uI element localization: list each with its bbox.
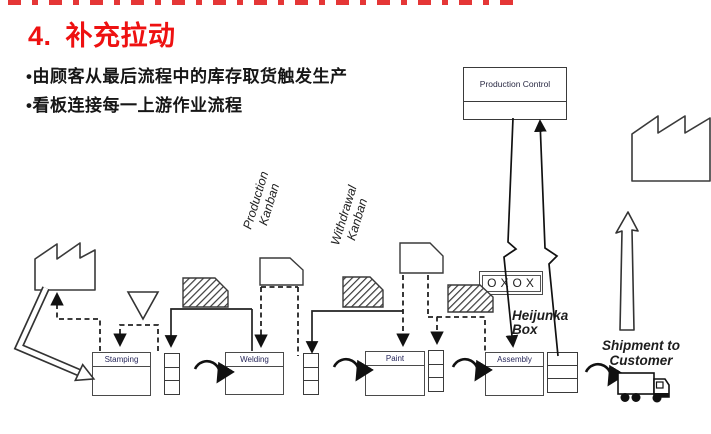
- kanban-path-into-assembly: [437, 317, 485, 351]
- bullet-item-2: •看板连接每一上游作业流程: [26, 91, 242, 116]
- kanban-path-into-stock3: [428, 317, 437, 343]
- stack-cell: [547, 378, 578, 393]
- push-arrow-supplier-to-stamping: [19, 288, 94, 380]
- heijunka-symbols: OXOX: [482, 275, 541, 292]
- production-kanban-label: Production Kanban: [237, 155, 290, 251]
- title-text: 补充拉动: [66, 21, 176, 51]
- production-control-divider: [464, 101, 566, 102]
- withdrawal-kanban-card-icon: [400, 243, 443, 273]
- heijunka-box: OXOX: [479, 271, 543, 295]
- truck-icon: [618, 373, 669, 403]
- steel-supplier-label: Steel Supplier: [37, 266, 95, 275]
- production-control-label: Production Control: [464, 79, 566, 89]
- heijunka-box-label: Heijunka Box: [512, 309, 578, 337]
- inventory-stack-after-stamping: [164, 353, 180, 395]
- slide-canvas: 4.补充拉动 •由顾客从最后流程中的库存取货触发生产 •看板连接每一上游作业流程…: [0, 0, 711, 434]
- kanban-card-hatched-icon: [183, 278, 228, 307]
- process-label-stamping: Stamping: [93, 353, 150, 367]
- process-label-assembly: Assembly: [486, 353, 543, 367]
- kanban-path-triangle-to-stamping: [120, 325, 158, 351]
- kanban-card-hatched-icon: [343, 277, 383, 307]
- title-number: 4.: [28, 21, 52, 51]
- process-box-stamping: Stamping: [92, 352, 151, 396]
- kanban-path-to-supplier: [57, 294, 100, 351]
- kanban-dashed-paths: [57, 275, 485, 356]
- process-box-assembly: Assembly: [485, 352, 544, 396]
- slide-title: 4.补充拉动: [28, 14, 176, 53]
- shipment-label: Shipment to Customer: [594, 339, 688, 369]
- cropped-red-text-fragments: [8, 0, 520, 5]
- stack-cell: [164, 380, 180, 395]
- process-label-welding: Welding: [226, 353, 283, 367]
- production-kanban-card-icon: [260, 258, 303, 285]
- inventory-stack-after-welding: [303, 353, 319, 395]
- withdrawal-path-stock2: [312, 311, 403, 352]
- shipment-up-arrow-icon: [616, 212, 638, 330]
- process-box-paint: Paint: [365, 351, 425, 396]
- inventory-stack-after-paint: [428, 350, 444, 392]
- process-box-welding: Welding: [225, 352, 284, 395]
- customer-label: Customer: [637, 146, 699, 156]
- withdrawal-kanban-label: Withdrawal Kanban: [325, 170, 378, 266]
- withdrawal-loop-icon: [334, 359, 359, 379]
- withdrawal-path-stock1: [171, 309, 252, 346]
- withdrawal-loop-icon: [453, 359, 478, 379]
- inventory-triangle-icon: [128, 292, 158, 319]
- process-label-paint: Paint: [366, 352, 424, 366]
- production-control-box: Production Control: [463, 67, 567, 120]
- shipping-stock-stack: [547, 352, 578, 393]
- withdrawal-loop-icon: [195, 361, 220, 381]
- bullet-item-1: •由顾客从最后流程中的库存取货触发生产: [26, 62, 347, 87]
- withdrawal-solid-paths: [171, 309, 403, 352]
- stack-cell: [303, 380, 319, 395]
- stack-cell: [428, 377, 444, 392]
